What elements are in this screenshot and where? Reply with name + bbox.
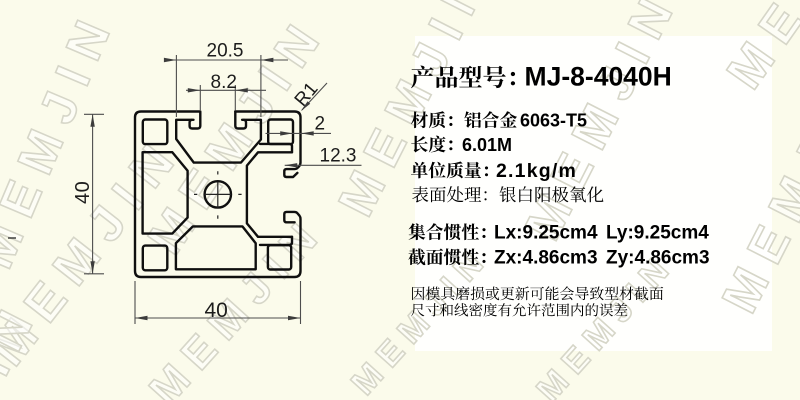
svg-text:Ly:9.25cm4: Ly:9.25cm4 xyxy=(606,223,709,244)
svg-text:12.3: 12.3 xyxy=(320,146,357,167)
svg-text:40: 40 xyxy=(205,299,228,322)
svg-text:40: 40 xyxy=(72,181,94,204)
svg-text:Zy:4.86cm3: Zy:4.86cm3 xyxy=(606,248,710,269)
svg-text:20.5: 20.5 xyxy=(207,41,244,62)
svg-text:Lx:9.25cm4: Lx:9.25cm4 xyxy=(494,223,598,244)
svg-text:2.1kg/m: 2.1kg/m xyxy=(496,160,577,182)
svg-text:6.01M: 6.01M xyxy=(462,135,512,155)
svg-text:6063-T5: 6063-T5 xyxy=(520,111,587,131)
svg-text:Zx:4.86cm3: Zx:4.86cm3 xyxy=(494,248,598,269)
svg-text:8.2: 8.2 xyxy=(211,72,237,93)
svg-text:2: 2 xyxy=(315,114,326,135)
svg-text:MJ-8-4040H: MJ-8-4040H xyxy=(525,62,672,92)
